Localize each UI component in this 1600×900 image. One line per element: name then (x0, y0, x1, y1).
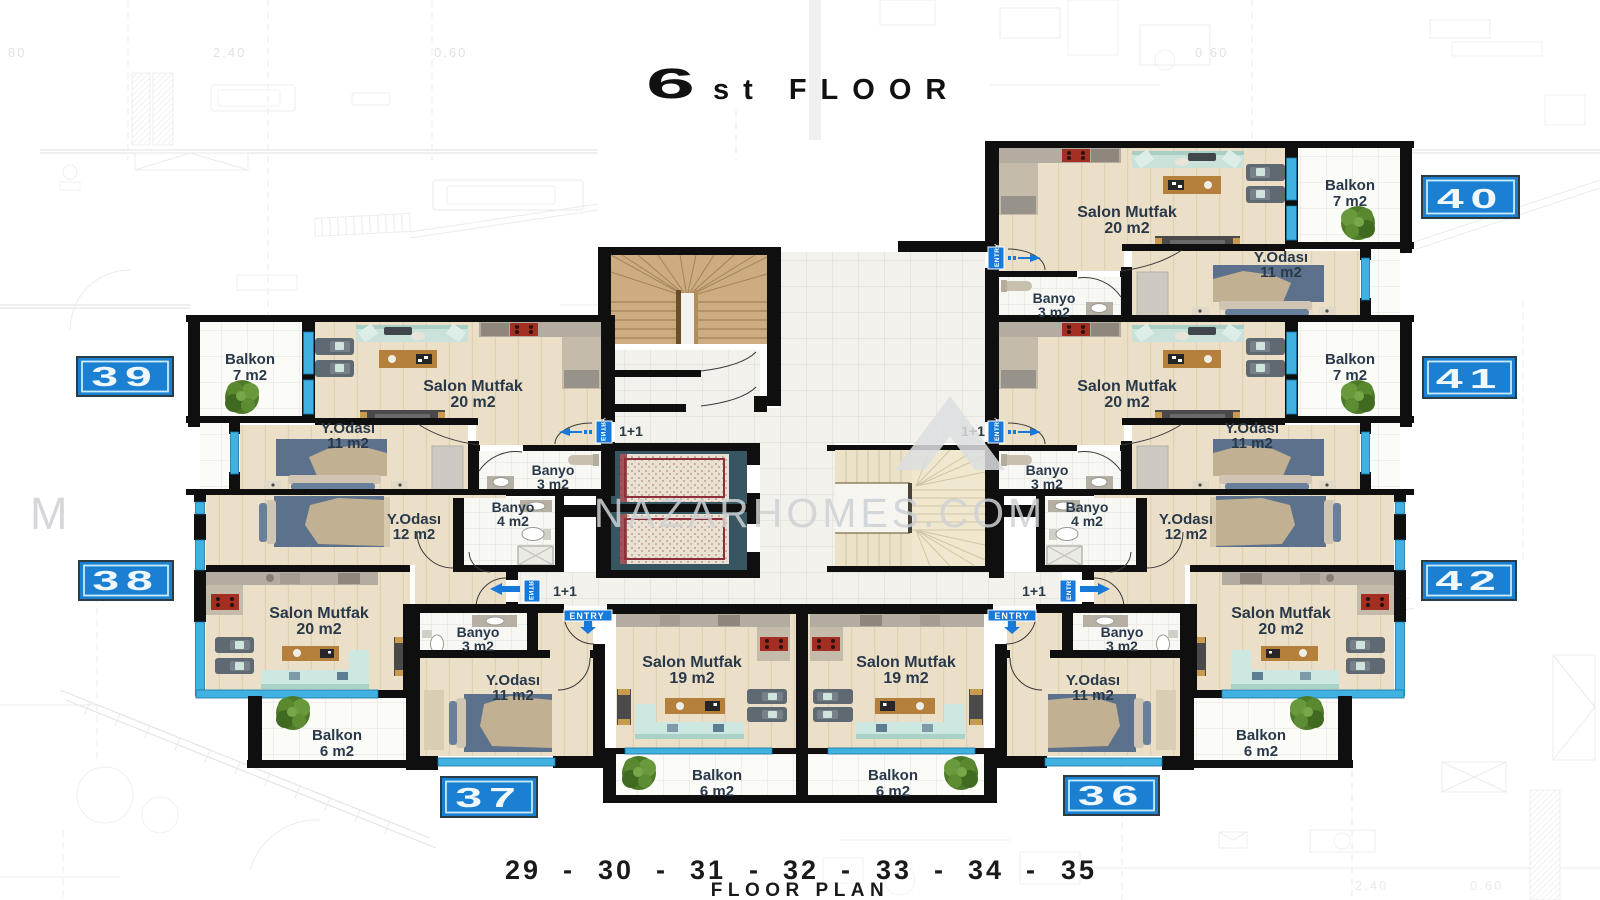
svg-text:2.40: 2.40 (1355, 878, 1388, 893)
svg-text:80: 80 (8, 45, 26, 60)
svg-text:20 m2: 20 m2 (1104, 220, 1149, 237)
svg-text:6 m2: 6 m2 (876, 783, 910, 800)
svg-text:1+1: 1+1 (619, 423, 643, 439)
svg-text:40: 40 (1437, 183, 1504, 214)
svg-text:11 m2: 11 m2 (1231, 435, 1273, 452)
svg-text:Salon Mutfak: Salon Mutfak (269, 605, 369, 622)
svg-text:20 m2: 20 m2 (1104, 394, 1149, 411)
svg-text:11 m2: 11 m2 (327, 435, 369, 452)
svg-text:1+1: 1+1 (1022, 583, 1046, 599)
svg-text:7 m2: 7 m2 (1333, 367, 1367, 384)
svg-text:Salon Mutfak: Salon Mutfak (1077, 378, 1177, 395)
svg-text:20 m2: 20 m2 (450, 394, 495, 411)
svg-text:6 m2: 6 m2 (1244, 743, 1278, 760)
svg-text:11 m2: 11 m2 (492, 687, 534, 704)
svg-text:39: 39 (91, 361, 158, 392)
svg-text:3 m2: 3 m2 (462, 638, 494, 654)
svg-text:7 m2: 7 m2 (233, 367, 267, 384)
svg-text:12 m2: 12 m2 (393, 526, 436, 543)
svg-text:Balkon: Balkon (312, 727, 362, 744)
svg-text:2.40: 2.40 (213, 45, 246, 60)
svg-text:ENTRY: ENTRY (569, 611, 604, 621)
svg-text:0 60: 0 60 (1195, 45, 1228, 60)
svg-text:3 m2: 3 m2 (537, 476, 569, 492)
svg-text:42: 42 (1435, 565, 1502, 596)
svg-text:11 m2: 11 m2 (1260, 264, 1302, 281)
svg-text:1+1: 1+1 (553, 583, 577, 599)
svg-text:Salon Mutfak: Salon Mutfak (423, 378, 523, 395)
svg-text:NAZARHOMES.COM: NAZARHOMES.COM (594, 490, 1046, 536)
svg-text:ENTRY: ENTRY (994, 611, 1029, 621)
svg-text:6: 6 (646, 59, 695, 107)
svg-text:37: 37 (455, 782, 522, 813)
svg-text:Balkon: Balkon (868, 767, 918, 784)
svg-text:Salon Mutfak: Salon Mutfak (642, 654, 742, 671)
svg-text:3 m2: 3 m2 (1106, 638, 1138, 654)
svg-text:3 m2: 3 m2 (1038, 304, 1070, 320)
svg-text:19 m2: 19 m2 (669, 670, 714, 687)
svg-text:36: 36 (1078, 780, 1145, 811)
svg-text:41: 41 (1436, 363, 1503, 394)
svg-text:st FLOOR: st FLOOR (713, 74, 960, 106)
svg-text:Balkon: Balkon (1236, 727, 1286, 744)
svg-text:FLOOR PLAN: FLOOR PLAN (711, 880, 890, 900)
svg-text:4 m2: 4 m2 (1071, 513, 1103, 529)
svg-text:Balkon: Balkon (1325, 177, 1375, 194)
svg-text:6 m2: 6 m2 (700, 783, 734, 800)
svg-text:7 m2: 7 m2 (1333, 193, 1367, 210)
svg-text:Balkon: Balkon (225, 351, 275, 368)
svg-text:Balkon: Balkon (1325, 351, 1375, 368)
svg-text:Salon Mutfak: Salon Mutfak (1231, 605, 1331, 622)
svg-text:Salon Mutfak: Salon Mutfak (856, 654, 956, 671)
svg-text:20 m2: 20 m2 (1258, 621, 1303, 638)
svg-text:20 m2: 20 m2 (296, 621, 341, 638)
svg-text:38: 38 (92, 565, 159, 596)
svg-text:12 m2: 12 m2 (1165, 526, 1208, 543)
svg-text:4 m2: 4 m2 (497, 513, 529, 529)
svg-text:M: M (30, 488, 68, 539)
svg-text:6 m2: 6 m2 (320, 743, 354, 760)
svg-text:19 m2: 19 m2 (883, 670, 928, 687)
svg-text:0.60: 0.60 (434, 45, 467, 60)
svg-text:Salon Mutfak: Salon Mutfak (1077, 204, 1177, 221)
svg-text:0.60: 0.60 (1470, 878, 1503, 893)
svg-text:Balkon: Balkon (692, 767, 742, 784)
svg-text:11 m2: 11 m2 (1072, 687, 1114, 704)
